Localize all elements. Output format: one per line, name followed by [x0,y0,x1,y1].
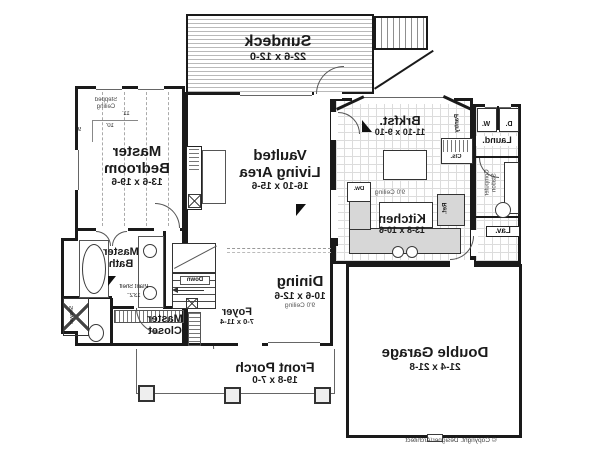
master-bedroom-label: Master Bedroom 13-6 x 19-6 [92,144,182,188]
brkfst-dims: 11-10 x 9-10 [358,128,442,138]
bath-divider-3 [180,228,186,231]
closet-line2: Closet [140,325,190,337]
master-bedroom-line1: Master [92,144,182,161]
height-9-label: 9' [72,127,86,134]
kitchen-label: Kitchen 13-8 x 10-6 [362,212,442,236]
sundeck-name: Sundeck [198,33,358,51]
master-bedroom-line2: Bedroom [92,161,182,178]
bath-divider-1 [75,228,96,231]
copyright-label: © Copyright. Designer/Architect [380,437,522,444]
closet-line1: Master [140,313,190,325]
junction-post [330,238,338,246]
marker-triangle-living [296,204,306,216]
kitchen-dims: 13-8 x 10-6 [362,226,442,236]
bedroom-window-left [75,150,82,190]
living-line1: Vaulted [228,148,332,165]
refrigerator-label: Ref. [443,193,450,223]
computer-line2: Station [491,155,498,211]
master-bath-label: Master Bath [98,246,144,270]
bay-window [362,94,446,101]
porch-column-3 [314,387,331,404]
sundeck-dims: 22-6 x 12-0 [198,51,358,63]
pantry-label: Pantry [455,103,462,143]
sundeck-label: Sundeck 22-6 x 12-0 [198,33,358,63]
dining-dims: 10-6 x 12-6 [250,291,350,302]
ceiling-step-line-v [92,120,93,142]
shower-stall [63,298,89,336]
dining-kitchen-opening [331,190,338,240]
plant-shelf-height: 13'2" [116,293,152,300]
brkfst-name: Brkfst. [358,114,442,128]
sink-basin-1 [392,246,404,258]
brkfst-label: Brkfst. 11-10 x 9-10 [358,114,442,138]
garage-hall-gap [450,260,474,269]
master-closet-label: Master Closet [140,313,190,337]
porch-dims: 19-8 x 7-0 [205,375,345,386]
bath-divider-2 [128,228,154,231]
vanity-sink-1 [143,244,157,258]
porch-column-2 [224,387,241,404]
washer-label: W. [478,121,494,129]
dining-front-window [268,339,320,346]
stepped-line1: Stepped [88,97,124,104]
kitchen-ceiling-note: 9'0 Ceiling [364,189,416,196]
bedroom-window-2 [138,86,164,93]
brkfst-table [383,150,427,180]
dining-label: Dining 10-6 x 12-6 9'0 Ceiling [250,274,350,309]
dining-ceiling-dash-1 [227,248,331,249]
height-10-label: 10' [102,123,118,130]
foyer-label: Foyer 7-0 x 11-4 [212,306,262,326]
living-label: Vaulted Living Area 16-10 x 15-6 [228,148,332,192]
stepped-ceiling-label: Stepped Ceiling [88,97,124,110]
lav-divider [473,216,521,218]
plant-shelf-label: Plant Shelf [112,284,156,291]
fireplace-flue-hatch [189,149,199,171]
living-dims: 16-10 x 15-6 [228,181,332,192]
wc-toilet [88,324,104,342]
laundry-label: Laund. [476,136,518,146]
garage-dims: 21-4 x 21-8 [365,362,505,373]
living-line2: Living Area [228,165,332,182]
computer-line1: Computer [484,155,491,211]
kitchen-name: Kitchen [362,212,442,226]
front-door-gap [238,340,262,348]
foyer-dims: 7-0 x 11-4 [212,318,262,326]
bath-line2: Bath [98,258,144,270]
marker-triangle-bath [108,276,116,286]
front-porch-label: Front Porch 19-8 x 7-0 [205,360,345,386]
fireplace-box [188,194,201,208]
porch-name: Front Porch [205,360,345,375]
garage-label: Double Garage 21-4 x 21-8 [365,345,505,373]
deck-stairs [374,16,428,50]
stairs-arrow-head [172,287,178,293]
fireplace-hearth [202,150,226,204]
shower-label: Shower [69,295,75,335]
dining-ceiling-dash-2 [227,252,331,253]
stairs-arrow-line [178,290,204,291]
stepped-line2: Ceiling [88,104,124,111]
bath-line1: Master [98,246,144,258]
garage-name: Double Garage [365,345,505,362]
linen-box [186,298,198,309]
living-brkfst-opening [331,112,338,140]
ceiling-step-line-h [92,120,138,121]
living-window [240,92,312,99]
lav-label: Lav. [486,226,520,237]
stairs-down-label: Down [180,276,210,285]
sink-basin-2 [406,246,418,258]
dining-ceiling-note: 9'0 Ceiling [250,302,350,309]
deck-rail-diagonal [374,50,434,90]
dining-name: Dining [250,274,350,291]
height-11-label: 11' [118,111,134,118]
computer-station-label: Computer Station [484,155,497,211]
closet-top-wall-1 [112,306,134,309]
master-bedroom-dims: 13-6 x 19-6 [92,177,182,188]
bedroom-window-1 [96,86,122,93]
floor-plan: Sundeck 22-6 x 12-0 Down [0,0,600,464]
wc-wall-v [110,298,113,346]
porch-column-1 [138,385,155,402]
dryer-label: D. [501,121,517,129]
cls-label: Cls. [442,154,470,161]
lav-toilet [495,202,511,218]
